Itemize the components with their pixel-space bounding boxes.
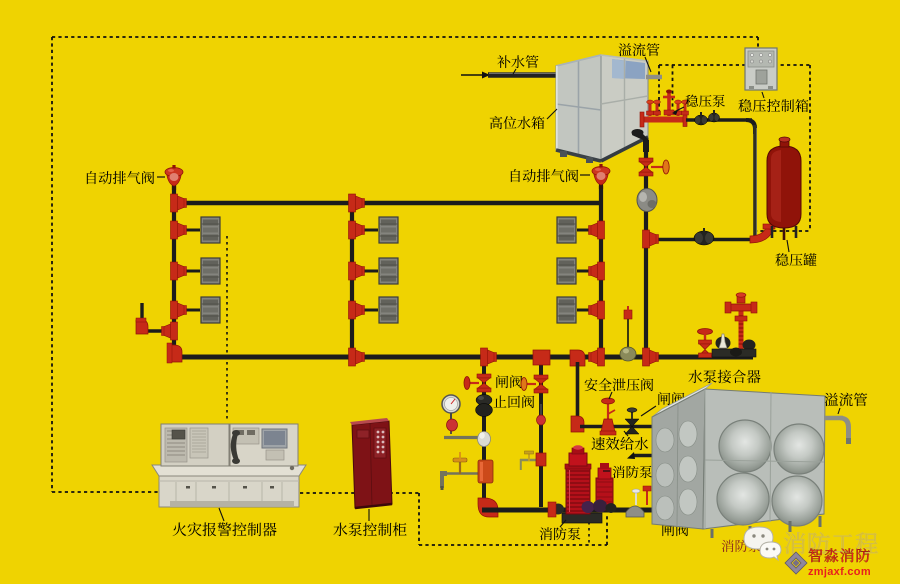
svg-text:zmjaxf.com: zmjaxf.com — [808, 566, 871, 578]
